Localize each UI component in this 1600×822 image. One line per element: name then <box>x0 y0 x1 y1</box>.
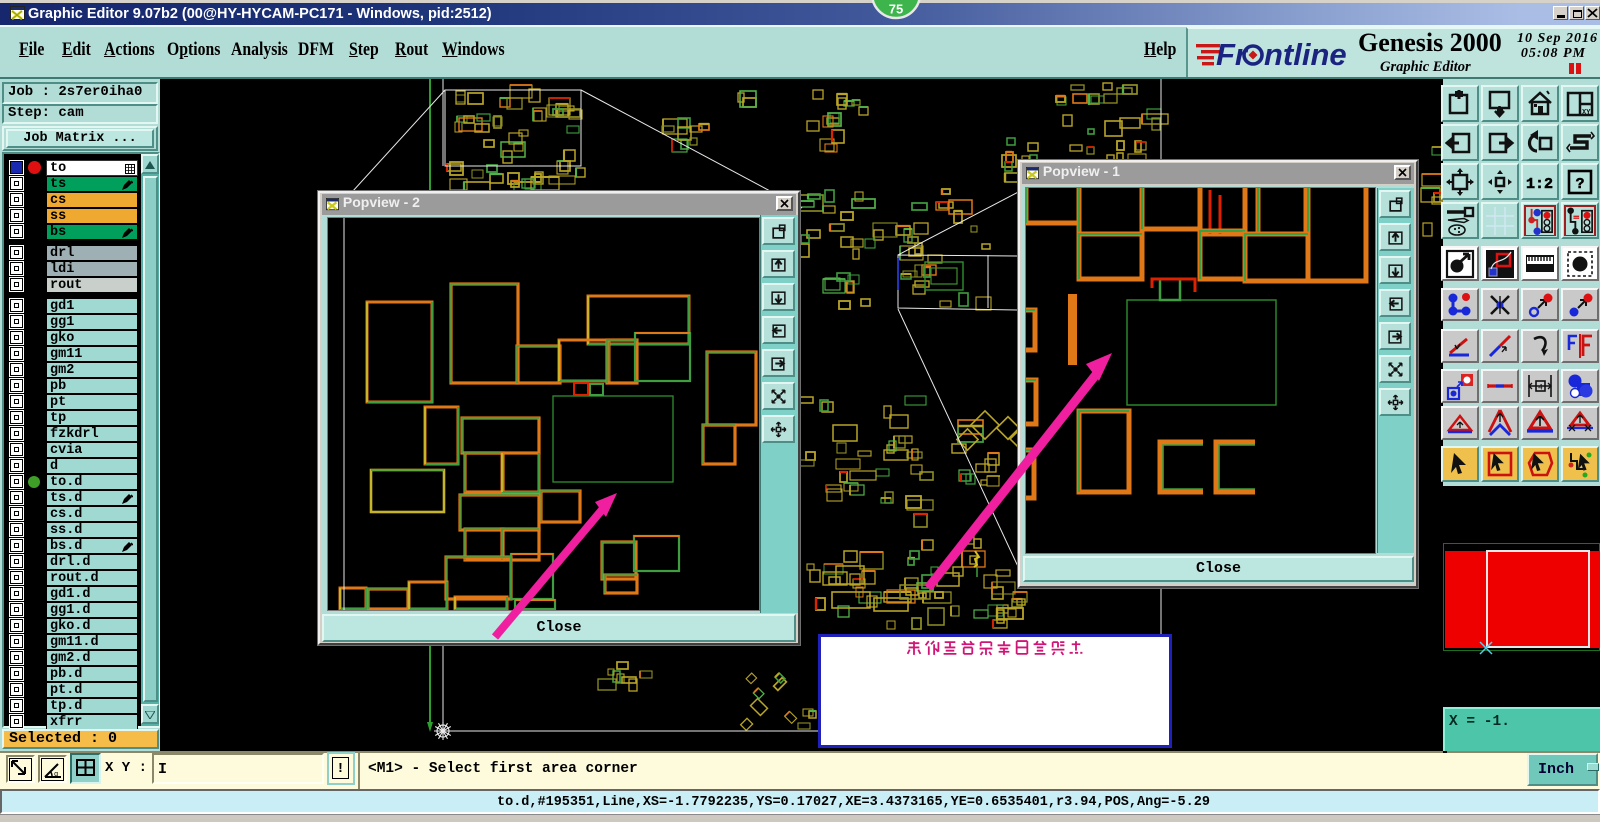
svg-text:XY: XY <box>1582 109 1591 117</box>
svg-text:?: ? <box>1576 176 1585 193</box>
svg-text:75: 75 <box>889 2 903 17</box>
svg-text:4: 4 <box>1538 384 1543 393</box>
svg-text:ntline: ntline <box>1264 37 1347 71</box>
svg-text:1:2: 1:2 <box>1526 176 1553 193</box>
svg-text:α: α <box>54 771 58 779</box>
